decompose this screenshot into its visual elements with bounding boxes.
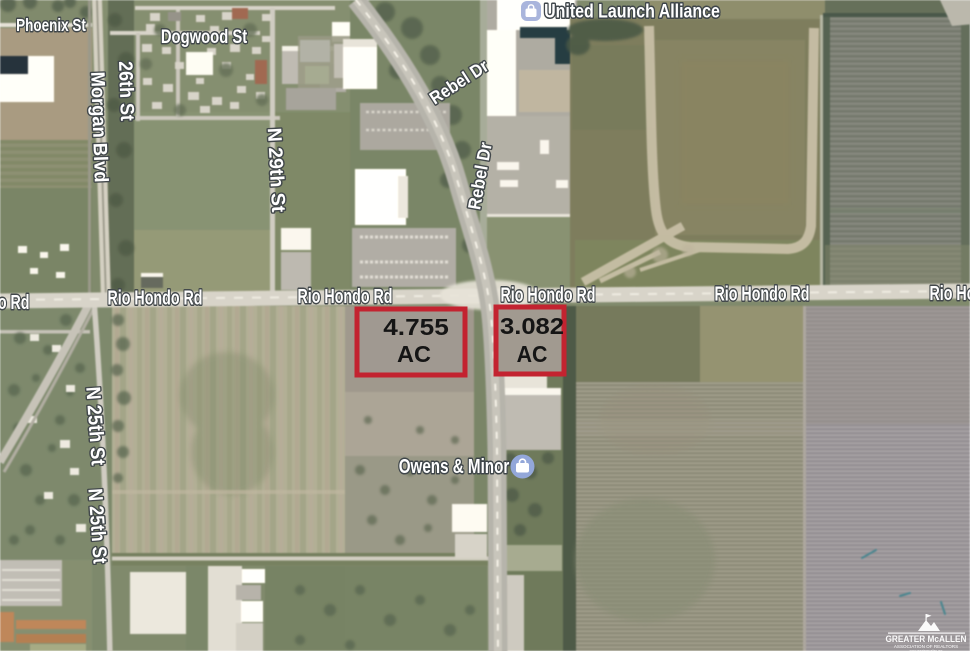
svg-text:Rio Hondo Rd: Rio Hondo Rd [501,283,596,306]
svg-text:AC: AC [397,341,431,367]
svg-text:26th St: 26th St [115,61,139,121]
svg-text:Phoenix St: Phoenix St [16,16,86,35]
svg-text:Morgan Blvd: Morgan Blvd [86,71,111,183]
svg-text:Rio Hondo Rd: Rio Hondo Rd [108,286,203,309]
svg-text:3.082: 3.082 [500,314,564,340]
svg-text:N 29th St: N 29th St [263,127,289,213]
svg-text:Dogwood St: Dogwood St [161,26,248,47]
svg-text:Rio Hondo Rd: Rio Hondo Rd [298,285,393,308]
svg-text:GREATER McALLEN: GREATER McALLEN [885,633,966,644]
svg-text:United Launch Alliance: United Launch Alliance [544,0,720,22]
svg-text:Rio Hondo Rd: Rio Hondo Rd [0,291,29,314]
svg-text:Owens & Minor: Owens & Minor [399,455,510,478]
svg-text:4.755: 4.755 [383,314,449,340]
svg-text:AC: AC [517,341,548,367]
svg-text:Rio Hondo Rd: Rio Hondo Rd [930,282,974,305]
svg-text:Rio Hondo Rd: Rio Hondo Rd [715,282,810,305]
